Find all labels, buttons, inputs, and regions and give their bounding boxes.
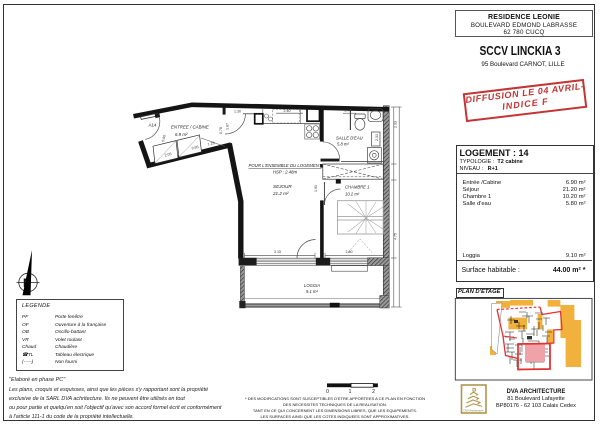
svg-text:1.93: 1.93 [314,185,318,192]
svg-text:6.9 m²: 6.9 m² [175,132,188,137]
svg-text:POUR L'ENSEMBLE DU LOGEMENT: POUR L'ENSEMBLE DU LOGEMENT [249,163,322,168]
svg-text:HSP : 2.48m: HSP : 2.48m [273,170,298,175]
svg-text:0: 0 [326,389,329,395]
svg-text:1.30: 1.30 [234,110,241,114]
svg-text:4.75: 4.75 [394,233,398,240]
svg-text:3.15: 3.15 [274,250,281,254]
svg-text:CHAMBRE 1: CHAMBRE 1 [345,185,369,190]
svg-text:21.2 m²: 21.2 m² [272,191,289,196]
svg-text:2.33: 2.33 [394,121,398,128]
svg-text:2: 2 [372,389,375,395]
svg-text:1.87: 1.87 [226,123,230,130]
svg-text:2.31: 2.31 [375,134,379,141]
svg-text:10.2 m²: 10.2 m² [345,192,360,197]
svg-text:LOGGIA: LOGGIA [304,283,320,288]
svg-text:1.28: 1.28 [207,141,215,147]
svg-text:1: 1 [349,389,352,395]
svg-text:2.40: 2.40 [345,109,352,113]
svg-text:2.80: 2.80 [346,250,353,254]
svg-text:DVA Architecture: DVA Architecture [463,409,484,413]
svg-text:A14: A14 [149,123,158,128]
svg-text:SEJOUR: SEJOUR [273,184,292,189]
svg-text:0.90: 0.90 [161,134,167,142]
svg-text:9.1 m²: 9.1 m² [306,289,318,294]
svg-text:2.40: 2.40 [284,109,291,113]
svg-text:5.8 m²: 5.8 m² [337,142,349,147]
svg-text:ENTREE / CABINE: ENTREE / CABINE [171,125,209,130]
svg-text:SALLE D'EAU: SALLE D'EAU [336,136,364,141]
svg-text:0.78: 0.78 [219,127,223,134]
